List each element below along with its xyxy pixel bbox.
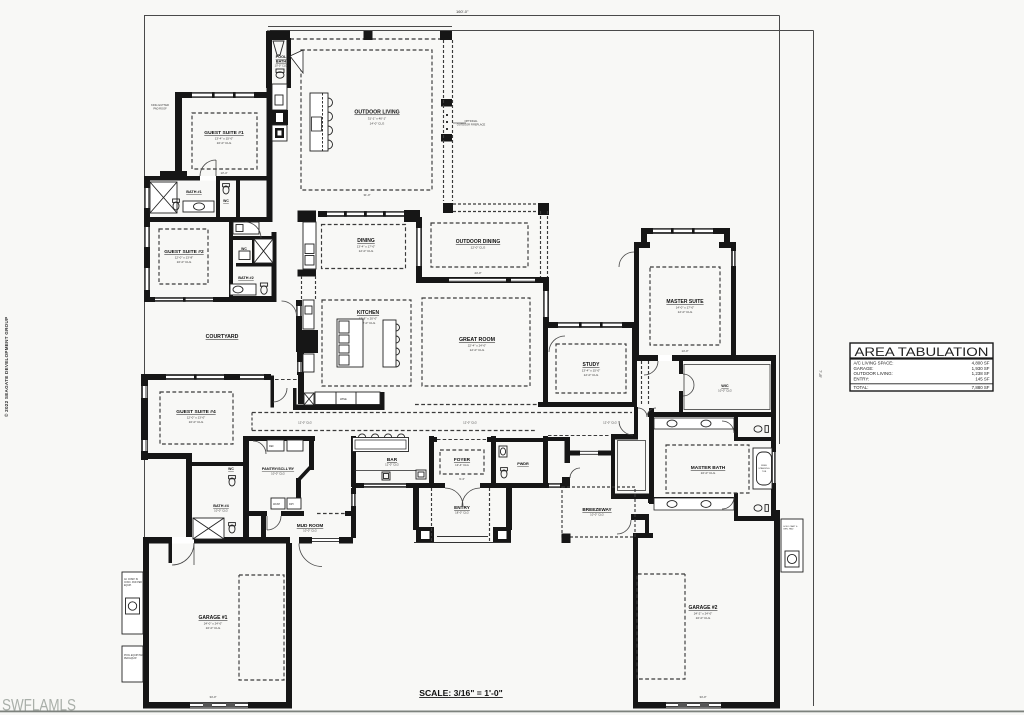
svg-text:10'-0" CLG: 10'-0" CLG bbox=[718, 389, 732, 393]
svg-text:POOL EQUIP PAD: POOL EQUIP PAD bbox=[124, 654, 144, 657]
svg-text:GOLF CART &: GOLF CART & bbox=[783, 525, 798, 528]
svg-text:145 SF: 145 SF bbox=[975, 376, 989, 381]
svg-text:7'-8": 7'-8" bbox=[818, 370, 823, 379]
svg-text:BATH #2: BATH #2 bbox=[238, 276, 254, 280]
svg-text:14'-0": 14'-0" bbox=[681, 349, 688, 353]
svg-text:OUTDOOR DINING: OUTDOOR DINING bbox=[456, 239, 501, 245]
svg-text:31'-0": 31'-0" bbox=[363, 193, 370, 197]
svg-text:AC COMP. IN: AC COMP. IN bbox=[124, 578, 138, 581]
svg-text:18'-0" CLG: 18'-0" CLG bbox=[455, 511, 469, 515]
svg-text:24'-0": 24'-0" bbox=[474, 271, 481, 275]
svg-text:FOYER: FOYER bbox=[454, 457, 471, 462]
svg-text:MUD ROOM: MUD ROOM bbox=[297, 523, 324, 528]
svg-text:10'-0" CLG: 10'-0" CLG bbox=[206, 626, 221, 630]
svg-text:10'-0" CLG: 10'-0" CLG bbox=[590, 513, 604, 517]
svg-text:WC: WC bbox=[241, 247, 247, 251]
svg-text:12'-0" x 13'-8": 12'-0" x 13'-8" bbox=[175, 256, 193, 260]
svg-text:10'-0" CLG: 10'-0" CLG bbox=[696, 616, 711, 620]
svg-text:STANDING: STANDING bbox=[758, 467, 769, 470]
svg-text:WIC: WIC bbox=[721, 384, 729, 388]
svg-text:REF: REF bbox=[269, 445, 274, 448]
svg-text:12'-0" CLG: 12'-0" CLG bbox=[298, 421, 312, 425]
svg-text:24'-2" x 24'-0": 24'-2" x 24'-0" bbox=[694, 612, 712, 616]
svg-text:24'-0" x 24'-0": 24'-0" x 24'-0" bbox=[204, 622, 222, 626]
svg-text:GARAGE:: GARAGE: bbox=[854, 366, 874, 371]
svg-text:22'-4" x 24'-0": 22'-4" x 24'-0" bbox=[468, 344, 486, 348]
svg-text:BATH #4: BATH #4 bbox=[213, 504, 229, 508]
svg-text:12'-0" CLG: 12'-0" CLG bbox=[359, 249, 374, 253]
svg-text:OUTDOOR FIREPLACE: OUTDOOR FIREPLACE bbox=[457, 122, 486, 126]
svg-text:GREAT ROOM: GREAT ROOM bbox=[459, 337, 496, 343]
svg-text:WC: WC bbox=[228, 467, 234, 471]
svg-text:7,880 SF: 7,880 SF bbox=[972, 385, 990, 390]
svg-text:13'-4": 13'-4" bbox=[220, 171, 227, 175]
svg-text:OUTDOOR LIVING: OUTDOOR LIVING bbox=[354, 110, 399, 116]
svg-text:POOL: POOL bbox=[276, 55, 287, 59]
svg-text:10'-0" CLG: 10'-0" CLG bbox=[214, 509, 228, 513]
svg-text:WINE: WINE bbox=[340, 397, 347, 401]
svg-text:CONC. PAD PER: CONC. PAD PER bbox=[124, 581, 142, 584]
svg-text:12'-0" x 13'-0": 12'-0" x 13'-0" bbox=[187, 416, 205, 420]
svg-text:12'-0" CLG: 12'-0" CLG bbox=[584, 373, 599, 377]
svg-text:TUB: TUB bbox=[762, 471, 767, 473]
svg-text:12'-0" CLG: 12'-0" CLG bbox=[471, 246, 486, 250]
svg-text:BREEZEWAY: BREEZEWAY bbox=[582, 507, 612, 512]
svg-text:BAR: BAR bbox=[387, 457, 398, 462]
svg-text:13'-4" x 15'-0": 13'-4" x 15'-0" bbox=[582, 369, 600, 373]
svg-text:STUDY: STUDY bbox=[583, 362, 601, 368]
svg-text:COURTYARD: COURTYARD bbox=[206, 334, 239, 340]
svg-text:ENTRY: ENTRY bbox=[454, 505, 471, 510]
svg-text:4,800 SF: 4,800 SF bbox=[972, 361, 990, 366]
svg-text:13'-4" x 15'-0": 13'-4" x 15'-0" bbox=[215, 137, 233, 141]
svg-text:10'-0" CLG: 10'-0" CLG bbox=[271, 472, 285, 476]
svg-text:BATH: BATH bbox=[276, 60, 287, 64]
svg-text:1,930 SF: 1,930 SF bbox=[972, 366, 990, 371]
svg-text:10'-0" CLG: 10'-0" CLG bbox=[275, 64, 288, 68]
svg-text:EQUIP.: EQUIP. bbox=[124, 585, 132, 587]
svg-text:160'-0": 160'-0" bbox=[456, 9, 469, 14]
svg-text:10'-0" CLG: 10'-0" CLG bbox=[303, 529, 317, 533]
svg-text:DINING: DINING bbox=[357, 238, 375, 244]
svg-text:FREE: FREE bbox=[761, 465, 767, 467]
svg-text:34'-0": 34'-0" bbox=[209, 695, 216, 699]
svg-text:12'-0" CLG: 12'-0" CLG bbox=[678, 310, 693, 314]
svg-text:WC: WC bbox=[223, 199, 229, 203]
svg-text:GUEST SUITE #1: GUEST SUITE #1 bbox=[204, 130, 244, 136]
svg-text:GARAGE #2: GARAGE #2 bbox=[689, 605, 718, 611]
svg-text:© 2022 SEAGATE DEVELOPMENT GRO: © 2022 SEAGATE DEVELOPMENT GROUP bbox=[3, 317, 9, 417]
svg-text:9'-4": 9'-4" bbox=[459, 477, 465, 481]
svg-text:34'-0": 34'-0" bbox=[699, 695, 706, 699]
svg-text:MASTER SUITE: MASTER SUITE bbox=[666, 299, 704, 305]
svg-text:10'-0" CLG: 10'-0" CLG bbox=[701, 471, 716, 475]
svg-text:14'-0" CLG: 14'-0" CLG bbox=[370, 122, 385, 126]
svg-text:10'-0" CLG: 10'-0" CLG bbox=[217, 141, 232, 145]
svg-text:DRY: DRY bbox=[289, 503, 294, 506]
svg-text:PER EQUIP.: PER EQUIP. bbox=[124, 658, 137, 660]
svg-text:OUTDOOR LIVING:: OUTDOOR LIVING: bbox=[854, 371, 893, 376]
svg-text:10'-0" CLG: 10'-0" CLG bbox=[177, 260, 192, 264]
svg-text:KITCHEN: KITCHEN bbox=[357, 310, 380, 316]
svg-text:12'-0" CLG: 12'-0" CLG bbox=[603, 421, 617, 425]
svg-text:KING GUTTER: KING GUTTER bbox=[151, 103, 169, 107]
svg-text:14'-0" x 17'-0": 14'-0" x 17'-0" bbox=[676, 306, 694, 310]
svg-text:TOTAL:: TOTAL: bbox=[854, 385, 869, 390]
svg-text:1,238 SF: 1,238 SF bbox=[972, 371, 990, 376]
svg-text:OPTIONAL: OPTIONAL bbox=[464, 119, 478, 123]
svg-text:GARAGE #1: GARAGE #1 bbox=[199, 615, 228, 621]
svg-text:GUEST SUITE #4: GUEST SUITE #4 bbox=[176, 409, 216, 415]
svg-text:AREA TABULATION: AREA TABULATION bbox=[855, 345, 989, 359]
svg-text:10'-0" CLG: 10'-0" CLG bbox=[189, 420, 204, 424]
svg-text:SCALE: 3/16" = 1'-0": SCALE: 3/16" = 1'-0" bbox=[419, 688, 503, 698]
svg-text:ENTRY:: ENTRY: bbox=[854, 376, 870, 381]
svg-text:13'-4" CLG: 13'-4" CLG bbox=[455, 463, 469, 467]
svg-text:31'-1" x 40'-1": 31'-1" x 40'-1" bbox=[368, 117, 386, 121]
svg-text:12'-0" CLG: 12'-0" CLG bbox=[463, 421, 477, 425]
svg-text:A/C LIVING SPACE:: A/C LIVING SPACE: bbox=[854, 361, 894, 366]
svg-text:13'-4" x 17'-0": 13'-4" x 17'-0" bbox=[357, 245, 375, 249]
svg-text:PWDR: PWDR bbox=[517, 462, 529, 466]
svg-text:12'-0" CLG: 12'-0" CLG bbox=[470, 348, 485, 352]
svg-text:12'-0" CLG: 12'-0" CLG bbox=[385, 463, 399, 467]
svg-text:GEN. PAD: GEN. PAD bbox=[783, 528, 794, 531]
svg-text:WASH: WASH bbox=[273, 503, 280, 506]
svg-text:PANTRY/SCLL'RY: PANTRY/SCLL'RY bbox=[262, 467, 295, 471]
svg-text:PAD ROOF: PAD ROOF bbox=[153, 106, 167, 110]
svg-text:BATH #1: BATH #1 bbox=[186, 190, 202, 194]
svg-text:GUEST SUITE #2: GUEST SUITE #2 bbox=[164, 249, 204, 255]
